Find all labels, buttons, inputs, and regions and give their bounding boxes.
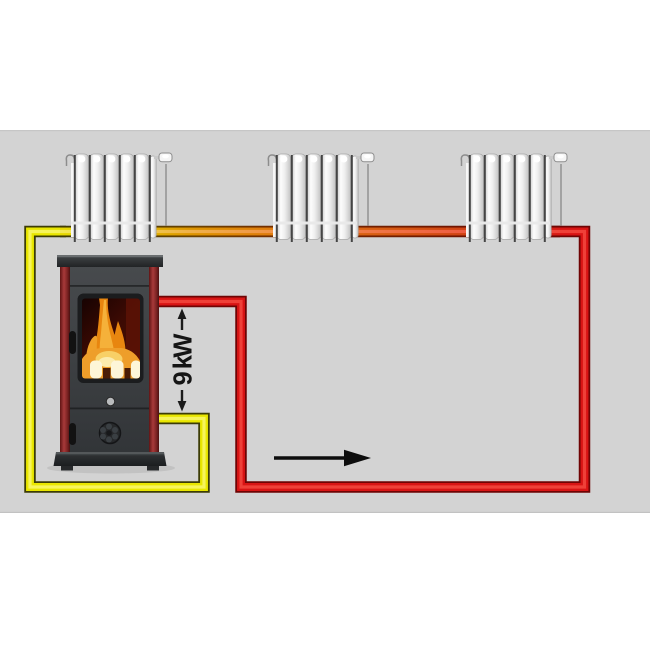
- svg-text:9 kW: 9 kW: [170, 333, 198, 386]
